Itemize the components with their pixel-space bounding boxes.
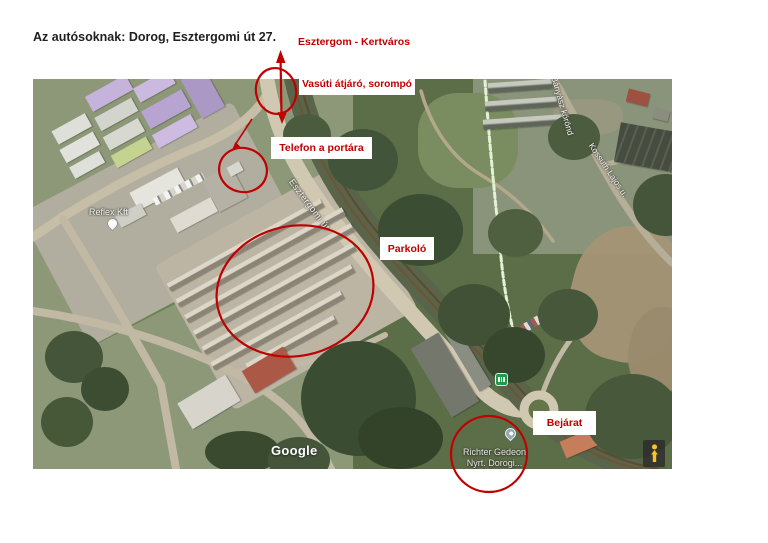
pegman-icon bbox=[643, 440, 665, 467]
rail-crossing-note-text: Vasúti átjáró, sorompó bbox=[302, 79, 412, 90]
parking-note-text: Parkoló bbox=[388, 243, 427, 255]
trees bbox=[488, 209, 543, 257]
phone-note-text: Telefon a portára bbox=[279, 142, 363, 154]
destination-label: Esztergom - Kertváros bbox=[298, 36, 410, 48]
entrance-note-text: Bejárat bbox=[547, 417, 583, 429]
transit-station-icon bbox=[496, 374, 507, 385]
trees bbox=[41, 397, 93, 447]
parking-note: Parkoló bbox=[380, 237, 434, 260]
page-title: Az autósoknak: Dorog, Esztergomi út 27. bbox=[33, 30, 276, 44]
place-label-line2: Nyrt. Dorogi... bbox=[447, 458, 542, 469]
company-map-label: Reflex Kft bbox=[89, 207, 128, 217]
direction-slide: Az autósoknak: Dorog, Esztergomi út 27. … bbox=[0, 0, 768, 543]
rail-crossing-note: Vasúti átjáró, sorompó bbox=[299, 74, 415, 95]
trees bbox=[81, 367, 129, 411]
place-label: Richter Gedeon Nyrt. Dorogi... bbox=[447, 447, 542, 468]
trees bbox=[538, 289, 598, 341]
trees bbox=[358, 407, 443, 469]
phone-note: Telefon a portára bbox=[271, 137, 372, 159]
entrance-note: Bejárat bbox=[533, 411, 596, 435]
google-watermark: Google bbox=[271, 443, 318, 458]
trees bbox=[483, 327, 545, 383]
arrowhead-up bbox=[276, 50, 286, 63]
place-label-line1: Richter Gedeon bbox=[447, 447, 542, 458]
